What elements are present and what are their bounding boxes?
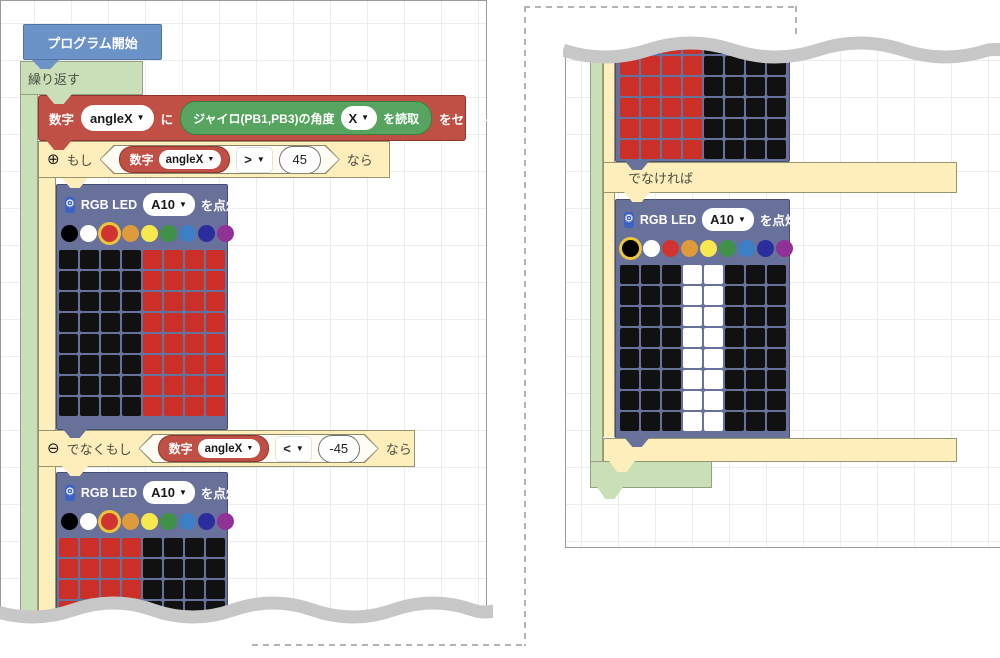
palette-dot[interactable] [160,225,177,242]
led-cell[interactable] [662,265,681,284]
led-cell[interactable] [641,370,660,389]
led-cell[interactable] [767,370,786,389]
gyro-label: ジャイロ(PB1,PB3)の角度 [193,110,334,127]
if-block-bottom-bar [603,438,957,462]
dropdown-arrow-icon: ▼ [296,445,304,453]
led-cell[interactable] [704,98,723,117]
led-cell[interactable] [767,286,786,305]
led-cell[interactable] [122,559,141,578]
led-cell[interactable] [662,391,681,410]
led-grid [620,265,786,431]
palette-dot[interactable] [622,240,639,257]
workspace: 繰り返す プログラム開始 数字 angleX ▼ に ジャイロ(PB1,PB3)… [0,0,1000,658]
palette-dot[interactable] [681,240,698,257]
color-palette [60,511,227,531]
expand-condition-icon[interactable]: ⊕ [47,152,60,167]
led-cell[interactable] [59,376,78,395]
led-cell[interactable] [101,334,120,353]
led-cell[interactable] [746,140,765,159]
led-cell[interactable] [641,391,660,410]
palette-dot[interactable] [719,240,736,257]
palette-dot[interactable] [217,225,234,242]
led-cell[interactable] [122,376,141,395]
led-cell[interactable] [725,370,744,389]
led-cell[interactable] [143,292,162,311]
led-action-label: を点灯 [201,483,239,502]
led-cell[interactable] [80,250,99,269]
led-cell[interactable] [662,119,681,138]
led-cell[interactable] [620,98,639,117]
led-cell[interactable] [767,391,786,410]
palette-dot[interactable] [122,513,139,530]
led-action-label: を点灯 [201,195,239,214]
gear-icon[interactable]: ⚙ [65,485,75,501]
callout-dashed-line [795,6,797,38]
dropdown-arrow-icon: ▼ [207,156,214,163]
led-cell[interactable] [683,286,702,305]
led-cell[interactable] [101,313,120,332]
led-cell[interactable] [704,391,723,410]
number-value[interactable]: -45 [318,435,360,463]
led-cell[interactable] [185,292,204,311]
palette-dot[interactable] [141,513,158,530]
led-cell[interactable] [59,334,78,353]
operator-dropdown[interactable]: > ▼ [236,147,273,173]
led-cell[interactable] [704,265,723,284]
led-grid [59,250,225,416]
led-cell[interactable] [143,334,162,353]
port-dropdown-value: A10 [710,212,734,227]
led-cell[interactable] [59,250,78,269]
led-cell[interactable] [641,349,660,368]
led-cell[interactable] [101,559,120,578]
led-cell[interactable] [206,376,225,395]
dropdown-arrow-icon: ▼ [738,216,746,224]
led-cell[interactable] [704,307,723,326]
led-cell[interactable] [59,538,78,557]
led-cell[interactable] [725,98,744,117]
led-cell[interactable] [641,307,660,326]
led-cell[interactable] [80,538,99,557]
led-cell[interactable] [704,140,723,159]
led-cell[interactable] [80,559,99,578]
led-cell[interactable] [185,355,204,374]
led-cell[interactable] [143,397,162,416]
led-cell[interactable] [206,538,225,557]
led-cell[interactable] [746,265,765,284]
led-cell[interactable] [185,397,204,416]
led-cell[interactable] [725,412,744,431]
palette-dot[interactable] [101,513,118,530]
led-cell[interactable] [164,397,183,416]
led-cell[interactable] [164,559,183,578]
led-cell[interactable] [143,250,162,269]
led-cell[interactable] [122,250,141,269]
led-cell[interactable] [725,328,744,347]
led-cell[interactable] [620,412,639,431]
set-variable-block[interactable]: 数字 angleX ▼ に ジャイロ(PB1,PB3)の角度 X ▼ を読取 を… [38,95,466,141]
led-cell[interactable] [620,265,639,284]
led-cell[interactable] [185,313,204,332]
if-block-spine [38,177,56,614]
condition-slot[interactable]: 数字 angleX ▼ < ▼ -45 [139,434,379,463]
led-cell[interactable] [683,98,702,117]
torn-edge-bottom [0,586,493,658]
led-cell[interactable] [101,397,120,416]
led-cell[interactable] [80,376,99,395]
led-cell[interactable] [143,376,162,395]
torn-edge-mask [563,0,1000,26]
led-cell[interactable] [641,140,660,159]
dropdown-arrow-icon: ▼ [257,156,265,164]
variable-dropdown-value: angleX [90,111,133,126]
led-cell[interactable] [164,334,183,353]
set-suffix-label: をセット [439,109,489,128]
led-cell[interactable] [59,271,78,290]
led-cell[interactable] [59,292,78,311]
callout-dashed-line [252,644,526,646]
led-cell[interactable] [725,286,744,305]
led-cell[interactable] [641,119,660,138]
led-cell[interactable] [746,370,765,389]
led-cell[interactable] [641,328,660,347]
led-cell[interactable] [101,292,120,311]
led-cell[interactable] [704,119,723,138]
led-cell[interactable] [725,265,744,284]
dropdown-arrow-icon: ▼ [361,114,369,122]
palette-dot[interactable] [179,225,196,242]
led-cell[interactable] [206,355,225,374]
led-cell[interactable] [206,313,225,332]
color-palette [60,223,227,243]
led-cell[interactable] [164,292,183,311]
then-label: なら [347,150,373,169]
led-cell[interactable] [185,334,204,353]
led-cell[interactable] [206,334,225,353]
read-label: を読取 [383,110,419,127]
led-cell[interactable] [662,370,681,389]
gear-icon[interactable]: ⚙ [65,197,75,213]
else-keyword: でなければ [628,168,693,187]
number-variable-block[interactable]: 数字 angleX ▼ [158,435,270,462]
led-cell[interactable] [767,328,786,347]
repeat-label: 繰り返す [28,69,80,88]
variable-dropdown-value: angleX [166,154,204,166]
led-cell[interactable] [620,349,639,368]
palette-dot[interactable] [122,225,139,242]
led-cell[interactable] [767,98,786,117]
led-cell[interactable] [80,271,99,290]
palette-dot[interactable] [160,513,177,530]
elseif-condition-row[interactable]: ⊖ でなくもし 数字 angleX ▼ < ▼ -45 なら [38,430,415,467]
type-label: 数字 [169,440,193,457]
palette-dot[interactable] [61,513,78,530]
led-cell[interactable] [641,286,660,305]
if-block-spine [603,46,615,437]
led-cell[interactable] [122,397,141,416]
led-cell[interactable] [683,370,702,389]
led-label: RGB LED [81,198,137,212]
led-cell[interactable] [620,119,639,138]
led-header: ⚙ RGB LED A10 ▼ を点灯 [65,193,221,216]
palette-dot[interactable] [662,240,679,257]
led-cell[interactable] [767,265,786,284]
led-cell[interactable] [101,250,120,269]
torn-edge-top [563,24,1000,80]
led-cell[interactable] [101,376,120,395]
led-cell[interactable] [59,313,78,332]
palette-dot[interactable] [217,513,234,530]
led-cell[interactable] [80,397,99,416]
led-cell[interactable] [620,328,639,347]
led-cell[interactable] [746,119,765,138]
palette-dot[interactable] [141,225,158,242]
led-cell[interactable] [767,412,786,431]
led-cell[interactable] [143,559,162,578]
led-cell[interactable] [143,355,162,374]
led-cell[interactable] [164,271,183,290]
led-cell[interactable] [746,286,765,305]
dropdown-arrow-icon: ▼ [137,114,145,122]
led-cell[interactable] [662,140,681,159]
led-cell[interactable] [101,538,120,557]
led-cell[interactable] [704,370,723,389]
led-cell[interactable] [122,334,141,353]
else-row[interactable]: でなければ [603,162,957,193]
number-variable-block[interactable]: 数字 angleX ▼ [119,146,231,173]
palette-dot[interactable] [643,240,660,257]
port-dropdown[interactable]: A10 ▼ [702,208,754,231]
port-dropdown[interactable]: A10 ▼ [143,481,195,504]
palette-dot[interactable] [738,240,755,257]
led-cell[interactable] [206,250,225,269]
led-cell[interactable] [101,355,120,374]
led-action-label: を点灯 [760,210,798,229]
led-cell[interactable] [746,412,765,431]
led-label: RGB LED [81,486,137,500]
gear-icon[interactable]: ⚙ [624,212,634,228]
led-cell[interactable] [59,397,78,416]
led-cell[interactable] [662,412,681,431]
led-cell[interactable] [641,98,660,117]
led-cell[interactable] [683,265,702,284]
then-label: なら [386,439,412,458]
led-cell[interactable] [164,355,183,374]
led-cell[interactable] [122,538,141,557]
number-value[interactable]: 45 [279,146,321,174]
led-cell[interactable] [725,140,744,159]
led-cell[interactable] [662,307,681,326]
led-cell[interactable] [746,98,765,117]
led-cell[interactable] [122,313,141,332]
led-cell[interactable] [206,397,225,416]
led-cell[interactable] [164,538,183,557]
palette-dot[interactable] [757,240,774,257]
elseif-keyword: でなくもし [67,439,132,458]
program-start-label: プログラム開始 [47,33,138,52]
led-cell[interactable] [683,307,702,326]
operator-value: < [283,441,291,456]
palette-dot[interactable] [198,225,215,242]
led-header: ⚙ RGB LED A10 ▼ を点灯 [65,481,221,504]
led-cell[interactable] [641,412,660,431]
led-cell[interactable] [620,286,639,305]
led-cell[interactable] [704,286,723,305]
palette-dot[interactable] [61,225,78,242]
led-cell[interactable] [620,370,639,389]
led-cell[interactable] [662,328,681,347]
led-cell[interactable] [185,376,204,395]
led-cell[interactable] [725,119,744,138]
led-cell[interactable] [704,412,723,431]
callout-dashed-line [524,6,797,8]
led-cell[interactable] [185,271,204,290]
gyro-read-block[interactable]: ジャイロ(PB1,PB3)の角度 X ▼ を読取 [180,101,432,135]
remove-condition-icon[interactable]: ⊖ [47,441,60,456]
led-cell[interactable] [80,313,99,332]
led-cell[interactable] [620,307,639,326]
led-cell[interactable] [767,307,786,326]
operator-dropdown[interactable]: < ▼ [275,436,312,462]
palette-dot[interactable] [80,513,97,530]
palette-dot[interactable] [179,513,196,530]
repeat-block-bottom-bar [590,461,712,488]
dropdown-arrow-icon: ▼ [246,445,253,452]
led-cell[interactable] [143,538,162,557]
axis-dropdown-value: X [349,111,358,126]
led-cell[interactable] [767,140,786,159]
led-display-block-1[interactable]: ⚙ RGB LED A10 ▼ を点灯 [56,184,228,430]
led-cell[interactable] [725,349,744,368]
palette-dot[interactable] [101,225,118,242]
led-cell[interactable] [683,391,702,410]
palette-dot[interactable] [80,225,97,242]
port-dropdown[interactable]: A10 ▼ [143,193,195,216]
variable-dropdown[interactable]: angleX ▼ [159,150,222,169]
led-cell[interactable] [80,292,99,311]
led-cell[interactable] [80,355,99,374]
if-keyword: もし [67,150,93,169]
palette-dot[interactable] [198,513,215,530]
led-cell[interactable] [206,271,225,290]
led-cell[interactable] [164,313,183,332]
led-cell[interactable] [683,328,702,347]
led-cell[interactable] [206,292,225,311]
if-condition-row[interactable]: ⊕ もし 数字 angleX ▼ > ▼ 45 なら [38,141,390,178]
led-cell[interactable] [662,98,681,117]
led-cell[interactable] [122,271,141,290]
led-cell[interactable] [767,349,786,368]
type-label: 数字 [130,151,154,168]
led-cell[interactable] [725,307,744,326]
callout-dashed-line [524,6,526,646]
led-display-block-3[interactable]: ⚙ RGB LED A10 ▼ を点灯 [615,199,790,439]
led-cell[interactable] [620,391,639,410]
variable-dropdown-value: angleX [205,443,243,455]
operator-value: > [244,152,252,167]
variable-dropdown[interactable]: angleX ▼ [81,105,154,131]
dropdown-arrow-icon: ▼ [179,489,187,497]
condition-slot[interactable]: 数字 angleX ▼ > ▼ 45 [100,145,340,174]
led-cell[interactable] [185,538,204,557]
particle-label: に [161,109,174,128]
led-cell[interactable] [746,349,765,368]
program-start-block[interactable]: プログラム開始 [23,24,162,60]
led-label: RGB LED [640,213,696,227]
led-cell[interactable] [620,140,639,159]
led-cell[interactable] [164,376,183,395]
led-cell[interactable] [59,559,78,578]
led-cell[interactable] [641,265,660,284]
color-palette [619,238,789,258]
led-cell[interactable] [662,349,681,368]
axis-dropdown[interactable]: X ▼ [341,106,378,130]
led-cell[interactable] [122,292,141,311]
led-cell[interactable] [206,559,225,578]
led-cell[interactable] [164,250,183,269]
led-cell[interactable] [683,349,702,368]
dropdown-arrow-icon: ▼ [179,201,187,209]
led-header: ⚙ RGB LED A10 ▼ を点灯 [624,208,783,231]
led-cell[interactable] [746,328,765,347]
palette-dot[interactable] [776,240,793,257]
port-dropdown-value: A10 [151,485,175,500]
port-dropdown-value: A10 [151,197,175,212]
repeat-block-spine [590,46,603,461]
led-cell[interactable] [683,412,702,431]
led-cell[interactable] [662,286,681,305]
led-cell[interactable] [80,334,99,353]
led-cell[interactable] [746,391,765,410]
led-cell[interactable] [704,328,723,347]
led-cell[interactable] [143,313,162,332]
variable-dropdown[interactable]: angleX ▼ [198,439,261,458]
led-cell[interactable] [683,140,702,159]
palette-dot[interactable] [700,240,717,257]
led-cell[interactable] [185,559,204,578]
led-cell[interactable] [143,271,162,290]
led-cell[interactable] [185,250,204,269]
led-cell[interactable] [704,349,723,368]
led-cell[interactable] [122,355,141,374]
led-cell[interactable] [767,119,786,138]
led-cell[interactable] [683,119,702,138]
led-cell[interactable] [725,391,744,410]
repeat-block-spine [20,93,38,614]
type-label: 数字 [49,109,74,128]
led-cell[interactable] [59,355,78,374]
led-cell[interactable] [101,271,120,290]
led-cell[interactable] [746,307,765,326]
